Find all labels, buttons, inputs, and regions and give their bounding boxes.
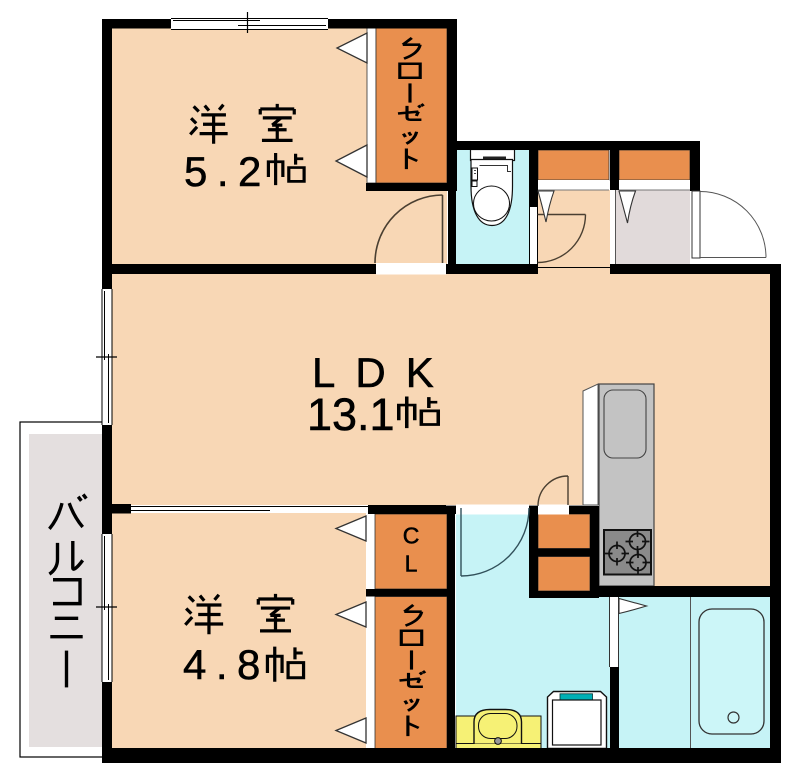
svg-text:5.2: 5.2	[184, 148, 271, 195]
svg-text:4.8: 4.8	[183, 641, 270, 688]
svg-text:C: C	[403, 523, 420, 549]
svg-text:13.1: 13.1	[307, 389, 395, 440]
svg-text:L: L	[405, 551, 418, 577]
